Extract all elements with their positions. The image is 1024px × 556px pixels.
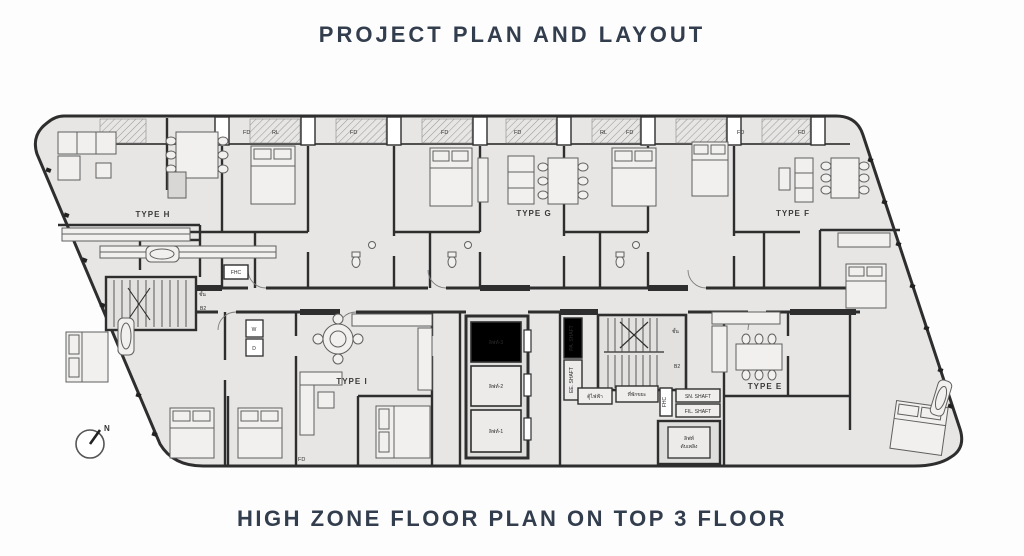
toilet	[616, 252, 624, 268]
toilet	[352, 252, 360, 268]
fd-mark: FD	[798, 130, 805, 136]
ee-shaft-label: EE. SHAFT	[569, 367, 575, 393]
page: PROJECT PLAN AND LAYOUT	[0, 0, 1024, 556]
bed	[376, 406, 430, 458]
north-arrow: N	[76, 424, 110, 458]
dining-table	[821, 158, 869, 198]
sofa	[795, 158, 813, 202]
electrical-room-label: ตู้ไฟฟ้า	[587, 393, 603, 400]
floor-plan-svg: FD RL FD FD FD RL FD FD FD	[0, 0, 1024, 556]
fd-mark: FD	[514, 130, 521, 136]
stair-core: ชั้น B2	[598, 315, 686, 390]
fire-lift-label-2: ดับเพลิง	[681, 443, 698, 450]
bed	[251, 146, 295, 204]
north-label: N	[104, 424, 110, 433]
fhc-label: FHC	[231, 270, 242, 276]
bed	[692, 142, 728, 196]
lift-2-label: ลิฟท์-2	[489, 383, 504, 390]
dining-table	[736, 334, 782, 380]
fd-mark: FD	[626, 130, 633, 136]
stair-level-label: B2	[674, 364, 680, 370]
side-table	[779, 168, 790, 190]
bathtub	[118, 318, 134, 355]
sn-shaft-label: SN. SHAFT	[685, 394, 711, 400]
pa-shaft-label: PA. SHAFT	[569, 325, 575, 350]
lift-1-label: ลิฟท์-1	[489, 428, 504, 435]
unit-label-type-g: TYPE G	[516, 209, 551, 218]
bed	[612, 148, 656, 206]
page-caption: HIGH ZONE FLOOR PLAN ON TOP 3 FLOOR	[0, 506, 1024, 532]
lift-3-label: ลิฟท์-3	[489, 339, 504, 346]
refuse-room-label: ที่พักขยะ	[628, 391, 647, 398]
fil-shaft-label: FIL. SHAFT	[685, 409, 711, 415]
fd-mark: FD	[737, 130, 744, 136]
sofa	[508, 156, 534, 204]
fhc-label-vertical: FHC	[662, 396, 668, 407]
kitchen-counter	[838, 233, 890, 247]
kitchen-column	[168, 172, 186, 198]
unit-label-type-e: TYPE E	[748, 382, 782, 391]
dryer-label: D	[252, 346, 256, 352]
unit-label-type-h: TYPE H	[136, 210, 171, 219]
bathtub	[146, 246, 179, 262]
left-stair-level-label: B2	[200, 306, 206, 312]
lift-bank: ลิฟท์-3 ลิฟท์-2 ลิฟท์-1	[466, 316, 531, 458]
bed	[170, 408, 214, 458]
fd-mark: FD	[441, 130, 448, 136]
bed	[846, 264, 886, 308]
fire-lift-label-1: ลิฟท์	[684, 435, 694, 442]
fd-mark-bottom: FD	[298, 457, 305, 463]
dining-table	[538, 158, 588, 204]
fd-mark: FD	[243, 130, 250, 136]
unit-label-type-i: TYPE I	[336, 377, 367, 386]
unit-label-type-f: TYPE F	[776, 209, 810, 218]
fhc-box-left: FHC	[224, 265, 248, 279]
bed	[238, 408, 282, 458]
tv-board	[478, 158, 488, 202]
rl-mark: RL	[272, 130, 279, 136]
rl-mark: RL	[600, 130, 607, 136]
fd-mark: FD	[350, 130, 357, 136]
toilet	[448, 252, 456, 268]
dining-table	[166, 132, 228, 178]
bed	[66, 332, 108, 382]
bed	[430, 148, 472, 206]
washer-label: W	[252, 327, 257, 333]
